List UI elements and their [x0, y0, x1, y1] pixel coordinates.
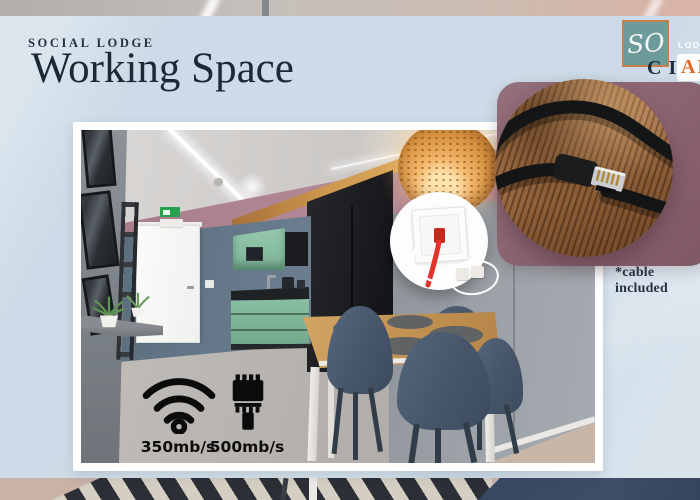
ethernet-cable [495, 79, 673, 257]
picture-frame [81, 130, 116, 188]
door-handle [187, 286, 194, 289]
background-photo-bottom-strip [0, 478, 700, 500]
wall-outlet [456, 268, 469, 280]
chair-leg [353, 392, 358, 460]
counter-jar [297, 280, 305, 289]
ethernet-plug-icon [227, 366, 269, 440]
logo-accent-letters: AL [681, 56, 700, 79]
logo-accent-box: AL [677, 54, 700, 81]
kitchen-lower-cabinets [231, 299, 309, 347]
background-photo-top-strip [0, 0, 700, 16]
promo-slide: { "slide": { "eyebrow": "SOCIAL LODGE", … [0, 0, 700, 500]
kettle [282, 277, 294, 289]
rj45-connector [551, 152, 627, 196]
wall-outlet [471, 266, 484, 278]
potted-plant [91, 288, 127, 334]
exit-sign [160, 207, 180, 217]
wifi-icon [139, 370, 219, 434]
striped-rug [52, 478, 492, 500]
wall-socket [205, 280, 214, 288]
logo-word-lodge: LODGE [678, 40, 700, 50]
page-title: Working Space [31, 44, 294, 93]
chair-leg [368, 388, 383, 452]
cabinet-plinth [231, 344, 309, 350]
wall-vent [160, 219, 183, 227]
kitchen-hood [285, 232, 308, 266]
potted-plant [123, 284, 153, 324]
logo-monogram: SO [626, 28, 666, 60]
placemat [387, 315, 433, 329]
table-leg [309, 478, 317, 500]
chair-leg [435, 428, 441, 463]
cable-note: *cable included [615, 265, 700, 297]
table-leg [307, 367, 319, 461]
kitchen-faucet [267, 275, 270, 289]
background-pole [262, 0, 269, 16]
ethernet-speed-label: 500mb/s [209, 438, 285, 456]
smoke-detector [214, 178, 223, 185]
ethernet-cable-photo [495, 79, 673, 257]
built-in-microwave [246, 247, 263, 261]
navy-sofa [478, 478, 700, 500]
